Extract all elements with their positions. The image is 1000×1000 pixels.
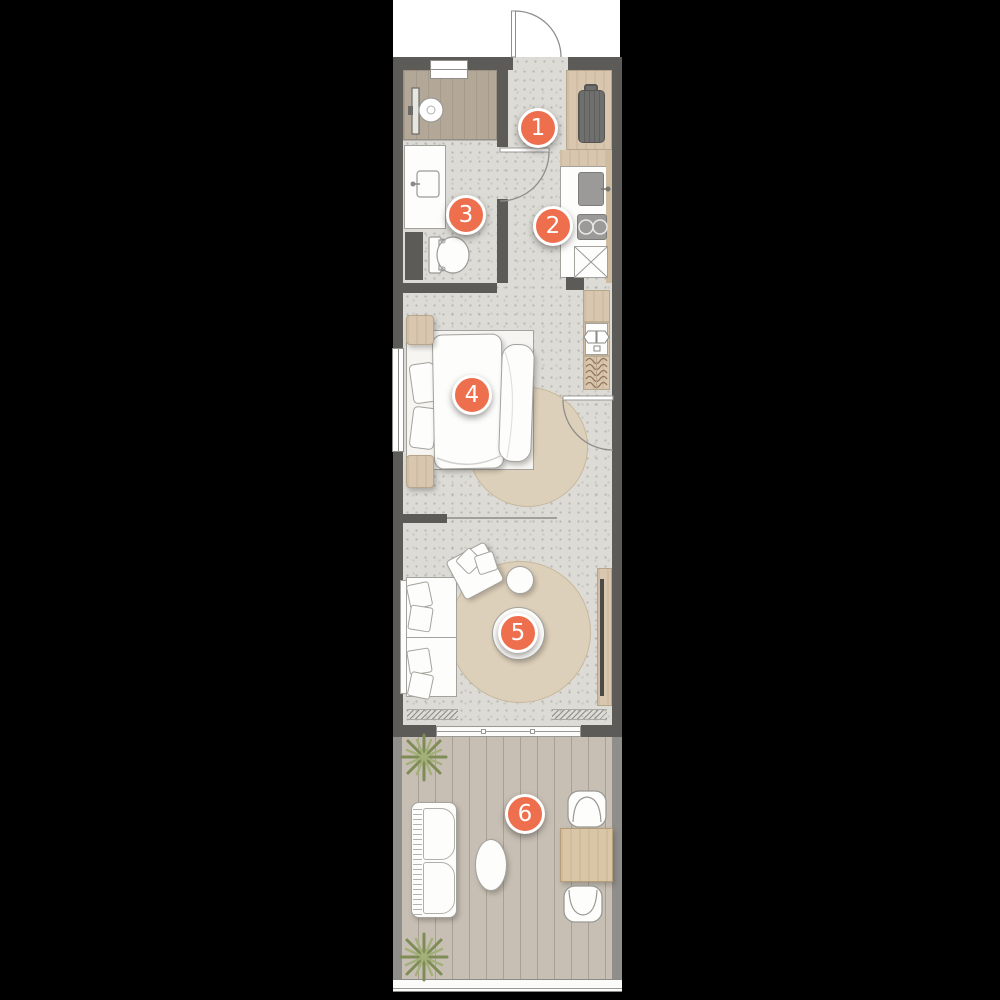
room-marker-4-number: 4 [465, 384, 480, 407]
room-marker-1-number: 1 [531, 117, 546, 140]
tv [600, 579, 604, 696]
balcony-lounge-backrest [413, 805, 422, 915]
bathroom-partition-lower [497, 199, 508, 283]
sliding-door [436, 726, 581, 737]
balcony-railing-line [393, 988, 622, 989]
room-marker-5[interactable]: 5 [498, 613, 538, 653]
radiator-right [552, 709, 607, 720]
balcony-oval-table [475, 839, 507, 891]
balcony-door-stub-right [581, 725, 622, 737]
shower-floor [403, 70, 497, 140]
kitchen-wall-stub [566, 277, 584, 290]
nightstand-bottom [406, 455, 434, 488]
balcony-railing [393, 979, 622, 992]
bathroom-partition-upper [497, 67, 508, 147]
bedroom-window-line [398, 349, 399, 451]
nightstand-top [406, 315, 434, 345]
balcony-border-left [393, 737, 402, 980]
room-marker-3-number: 3 [459, 204, 474, 227]
room-marker-6[interactable]: 6 [505, 794, 545, 834]
kitchen-sink [578, 172, 604, 206]
sliding-door-handle-2 [530, 729, 535, 734]
sliding-door-handle-1 [481, 729, 486, 734]
kitchen-shelf-band [560, 150, 612, 166]
suitcase [578, 90, 605, 143]
wardrobe-iron-shelf [585, 323, 608, 355]
radiator-left [407, 709, 458, 720]
room-marker-2-number: 2 [546, 215, 561, 238]
bathroom-wall-window [430, 60, 468, 79]
sliding-door-track [437, 731, 580, 732]
room-marker-5-number: 5 [511, 622, 526, 645]
floor-plan: 1 2 3 4 5 6 [0, 0, 1000, 1000]
bedroom-window [392, 348, 404, 452]
bedroom-top-wall [393, 283, 497, 293]
vanity [404, 145, 446, 229]
entry-threshold [513, 57, 568, 69]
balcony-lounge-cushion-1 [423, 808, 455, 860]
cooktop [577, 214, 607, 240]
outside-entrance-area [393, 0, 620, 57]
balcony-dining-table [560, 828, 613, 882]
room-marker-4[interactable]: 4 [452, 375, 492, 415]
room-marker-6-number: 6 [518, 803, 533, 826]
balcony-border-right [612, 737, 622, 980]
room-marker-1[interactable]: 1 [518, 108, 558, 148]
side-table [506, 566, 534, 594]
appliance-box [574, 246, 608, 278]
room-marker-3[interactable]: 3 [446, 195, 486, 235]
balcony-lounge [411, 802, 457, 918]
toilet-half-wall [405, 232, 423, 280]
balcony-door-stub-left [393, 725, 436, 737]
sofa-cushion-2 [407, 604, 434, 632]
balcony-lounge-cushion-2 [423, 862, 455, 914]
bed-pillow-large [498, 343, 535, 462]
sofa-cushion-3 [406, 647, 433, 675]
room-marker-2[interactable]: 2 [533, 206, 573, 246]
living-divider-line [447, 517, 557, 519]
bathroom-wall-window-line [431, 69, 467, 70]
living-divider-stub [393, 514, 447, 523]
sofa-seat-divider [407, 637, 456, 638]
wall-right [612, 57, 622, 737]
